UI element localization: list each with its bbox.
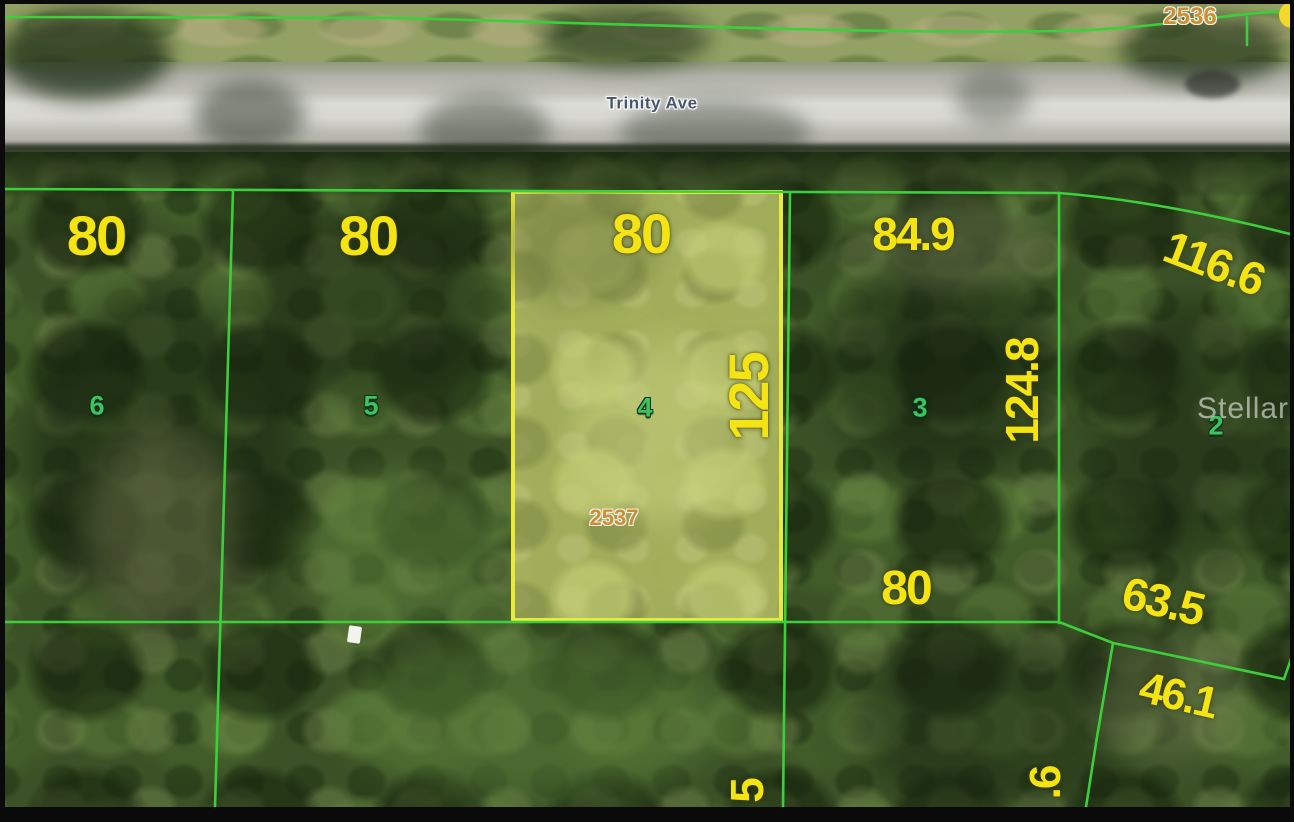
dimension-124-8-lot3-side: 124.8 <box>999 338 1045 443</box>
dimension-partial-6-south: .6 <box>1024 767 1068 800</box>
lot-number-5: 5 <box>363 393 378 420</box>
mls-aerial-lot-map: { "map": { "road": { "name": "Trinity Av… <box>0 0 1294 822</box>
frame-left <box>0 0 5 822</box>
lot-divider-4-3 <box>783 193 790 807</box>
lot-number-6: 6 <box>89 393 104 420</box>
stellar-mls-watermark: StellarMLS <box>1197 392 1294 426</box>
dimension-80-lot6: 80 <box>67 208 125 264</box>
dimension-125-lot4-side: 125 <box>721 353 777 440</box>
lot-number-4: 4 <box>637 395 652 422</box>
lot-number-3: 3 <box>912 395 927 422</box>
aerial-photo: Trinity Ave 2536 2537 6 5 4 3 2 80 80 80… <box>0 0 1294 822</box>
dimension-80-lot5: 80 <box>339 208 397 264</box>
dimension-80-lot4: 80 <box>612 206 670 262</box>
parcel-id-2536: 2536 <box>1163 5 1216 29</box>
frame-bottom <box>0 807 1294 822</box>
dimension-84-9-lot3: 84.9 <box>872 211 954 257</box>
parcel-id-2537: 2537 <box>590 507 639 529</box>
front-lot-line <box>4 189 1059 193</box>
lot-divider-6-5 <box>215 190 233 807</box>
dimension-partial-5-south: 5 <box>724 779 770 803</box>
frame-right <box>1290 0 1294 822</box>
dimension-80-lot3-rear: 80 <box>881 565 930 613</box>
southeast-divider <box>1086 643 1113 807</box>
road-name-label: Trinity Ave <box>606 95 697 112</box>
frame-top <box>0 0 1294 4</box>
north-parcel-line <box>4 11 1290 32</box>
